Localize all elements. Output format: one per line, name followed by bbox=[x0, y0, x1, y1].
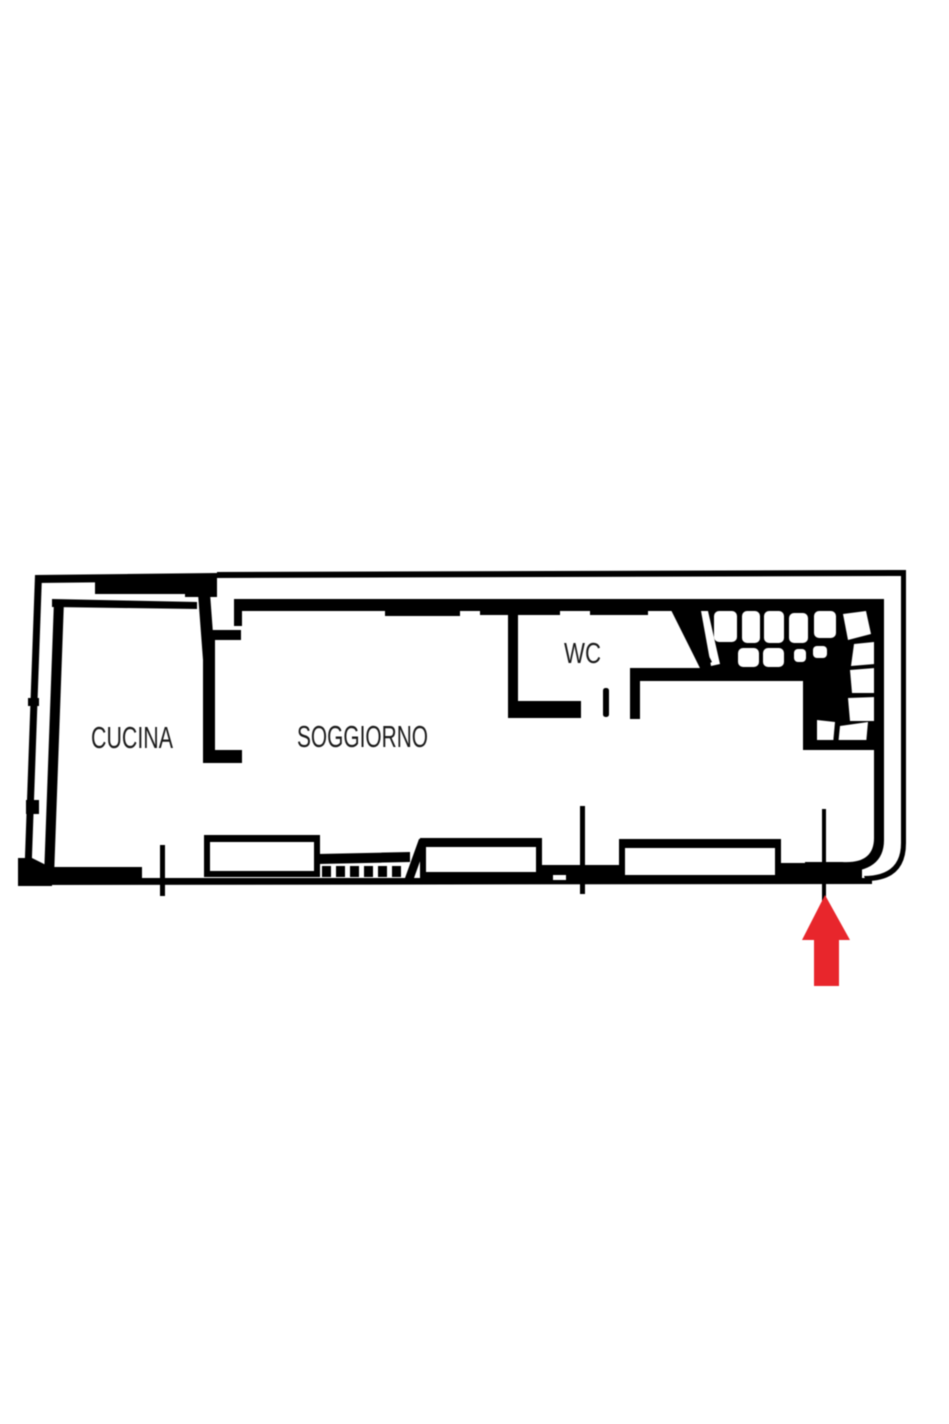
svg-text:SOGGIORNO: SOGGIORNO bbox=[297, 719, 428, 754]
svg-text:CUCINA: CUCINA bbox=[91, 720, 173, 755]
svg-text:WC: WC bbox=[564, 638, 601, 670]
